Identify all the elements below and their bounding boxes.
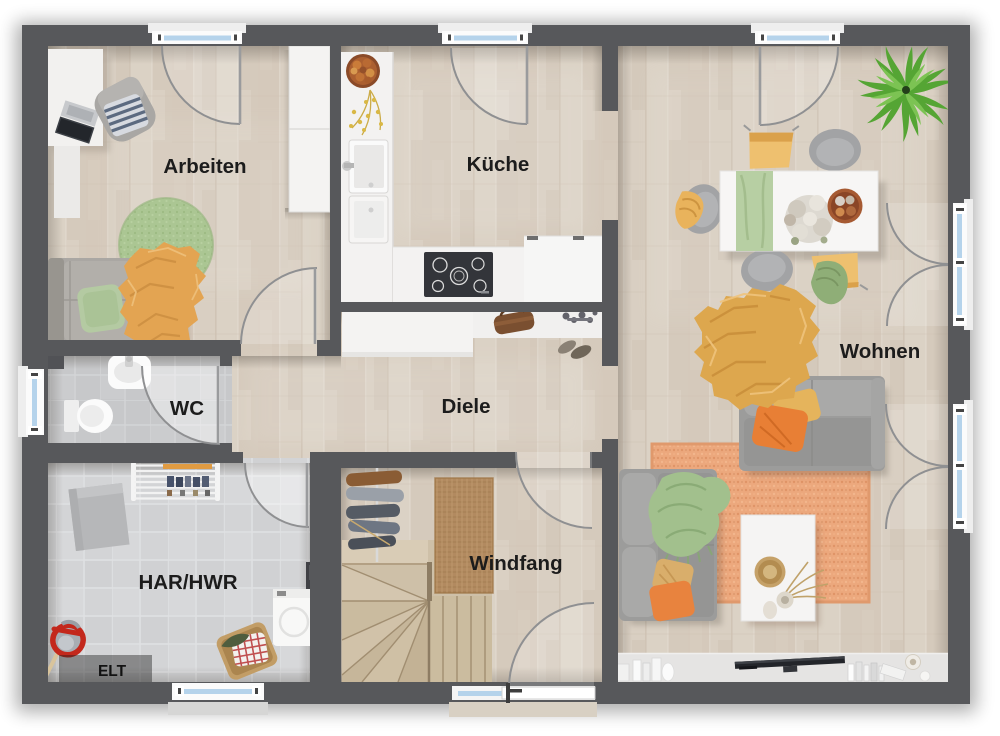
svg-text:Windfang: Windfang	[469, 552, 562, 575]
svg-text:Diele: Diele	[442, 395, 491, 418]
svg-text:WC: WC	[170, 397, 204, 420]
svg-text:HAR/HWR: HAR/HWR	[138, 571, 237, 594]
svg-text:ELT: ELT	[98, 663, 127, 680]
svg-text:Wohnen: Wohnen	[840, 340, 920, 363]
svg-text:Küche: Küche	[467, 153, 530, 176]
svg-text:Arbeiten: Arbeiten	[163, 155, 246, 178]
